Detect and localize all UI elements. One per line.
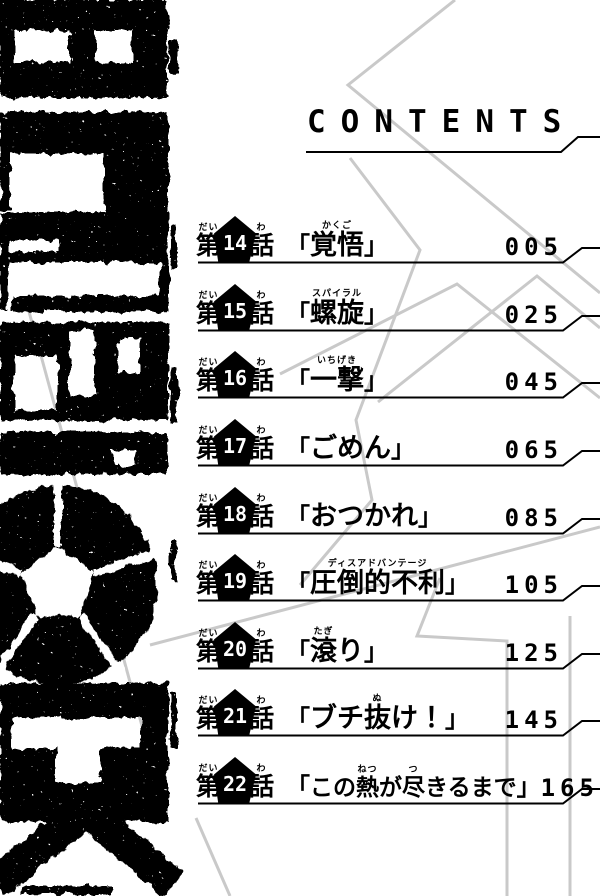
chapter-badge: 第だい 17 話わ: [196, 419, 274, 462]
chapter-number: 20: [223, 630, 247, 661]
toc-entry: 第だい 19 話わ 「圧倒的不利ディスアドバンテージ」 105: [196, 544, 600, 602]
chapter-prefix-ruby: だい: [196, 493, 221, 503]
chapter-badge: 第だい 19 話わ: [196, 554, 274, 597]
chapter-badge: 第だい 22 話わ: [196, 757, 274, 800]
chapter-prefix-ruby: だい: [196, 763, 221, 773]
chapter-suffix-ruby: わ: [249, 425, 274, 435]
manga-contents-page: CONTENTS 第だい 14 話わ 「覚悟かくご」 005 第だい 15: [0, 0, 600, 896]
chapter-number: 15: [223, 292, 247, 323]
chapter-prefix-ruby: だい: [196, 628, 221, 638]
chapter-prefix-ruby: だい: [196, 357, 221, 367]
toc-entries: 第だい 14 話わ 「覚悟かくご」 005 第だい 15 話わ: [0, 0, 600, 896]
chapter-number: 18: [223, 495, 247, 526]
chapter-prefix-ruby: だい: [196, 695, 221, 705]
toc-entry: 第だい 21 話わ 「ブチ抜ぬけ！」 145: [196, 679, 600, 737]
chapter-suffix-ruby: わ: [249, 628, 274, 638]
chapter-number: 14: [223, 224, 247, 255]
chapter-suffix-ruby: わ: [249, 763, 274, 773]
toc-entry: 第だい 22 話わ 「この熱ねつが尽つきるまで」 165: [196, 747, 600, 805]
chapter-suffix-ruby: わ: [249, 290, 274, 300]
chapter-badge: 第だい 14 話わ: [196, 216, 274, 259]
toc-entry: 第だい 18 話わ 「おつかれ」 085: [196, 477, 600, 535]
chapter-suffix-ruby: わ: [249, 222, 274, 232]
chapter-badge: 第だい 21 話わ: [196, 689, 274, 732]
chapter-prefix-ruby: だい: [196, 222, 221, 232]
toc-entry: 第だい 20 話わ 「滾たぎり」 125: [196, 612, 600, 670]
chapter-number: 21: [223, 697, 247, 728]
chapter-prefix-ruby: だい: [196, 425, 221, 435]
chapter-number: 16: [223, 359, 247, 390]
chapter-suffix-ruby: わ: [249, 493, 274, 503]
chapter-number: 19: [223, 562, 247, 593]
chapter-badge: 第だい 15 話わ: [196, 284, 274, 327]
chapter-number: 17: [223, 427, 247, 458]
chapter-badge: 第だい 18 話わ: [196, 487, 274, 530]
chapter-prefix-ruby: だい: [196, 290, 221, 300]
toc-entry: 第だい 14 話わ 「覚悟かくご」 005: [196, 206, 600, 264]
chapter-suffix-ruby: わ: [249, 357, 274, 367]
chapter-suffix-ruby: わ: [249, 560, 274, 570]
chapter-suffix-ruby: わ: [249, 695, 274, 705]
chapter-badge: 第だい 20 話わ: [196, 622, 274, 665]
toc-entry: 第だい 15 話わ 「螺旋スパイラル」 025: [196, 274, 600, 332]
chapter-number: 22: [223, 765, 247, 796]
chapter-badge: 第だい 16 話わ: [196, 351, 274, 394]
chapter-prefix-ruby: だい: [196, 560, 221, 570]
toc-entry: 第だい 17 話わ 「ごめん」 065: [196, 409, 600, 467]
toc-entry: 第だい 16 話わ 「一撃いちげき」 045: [196, 341, 600, 399]
